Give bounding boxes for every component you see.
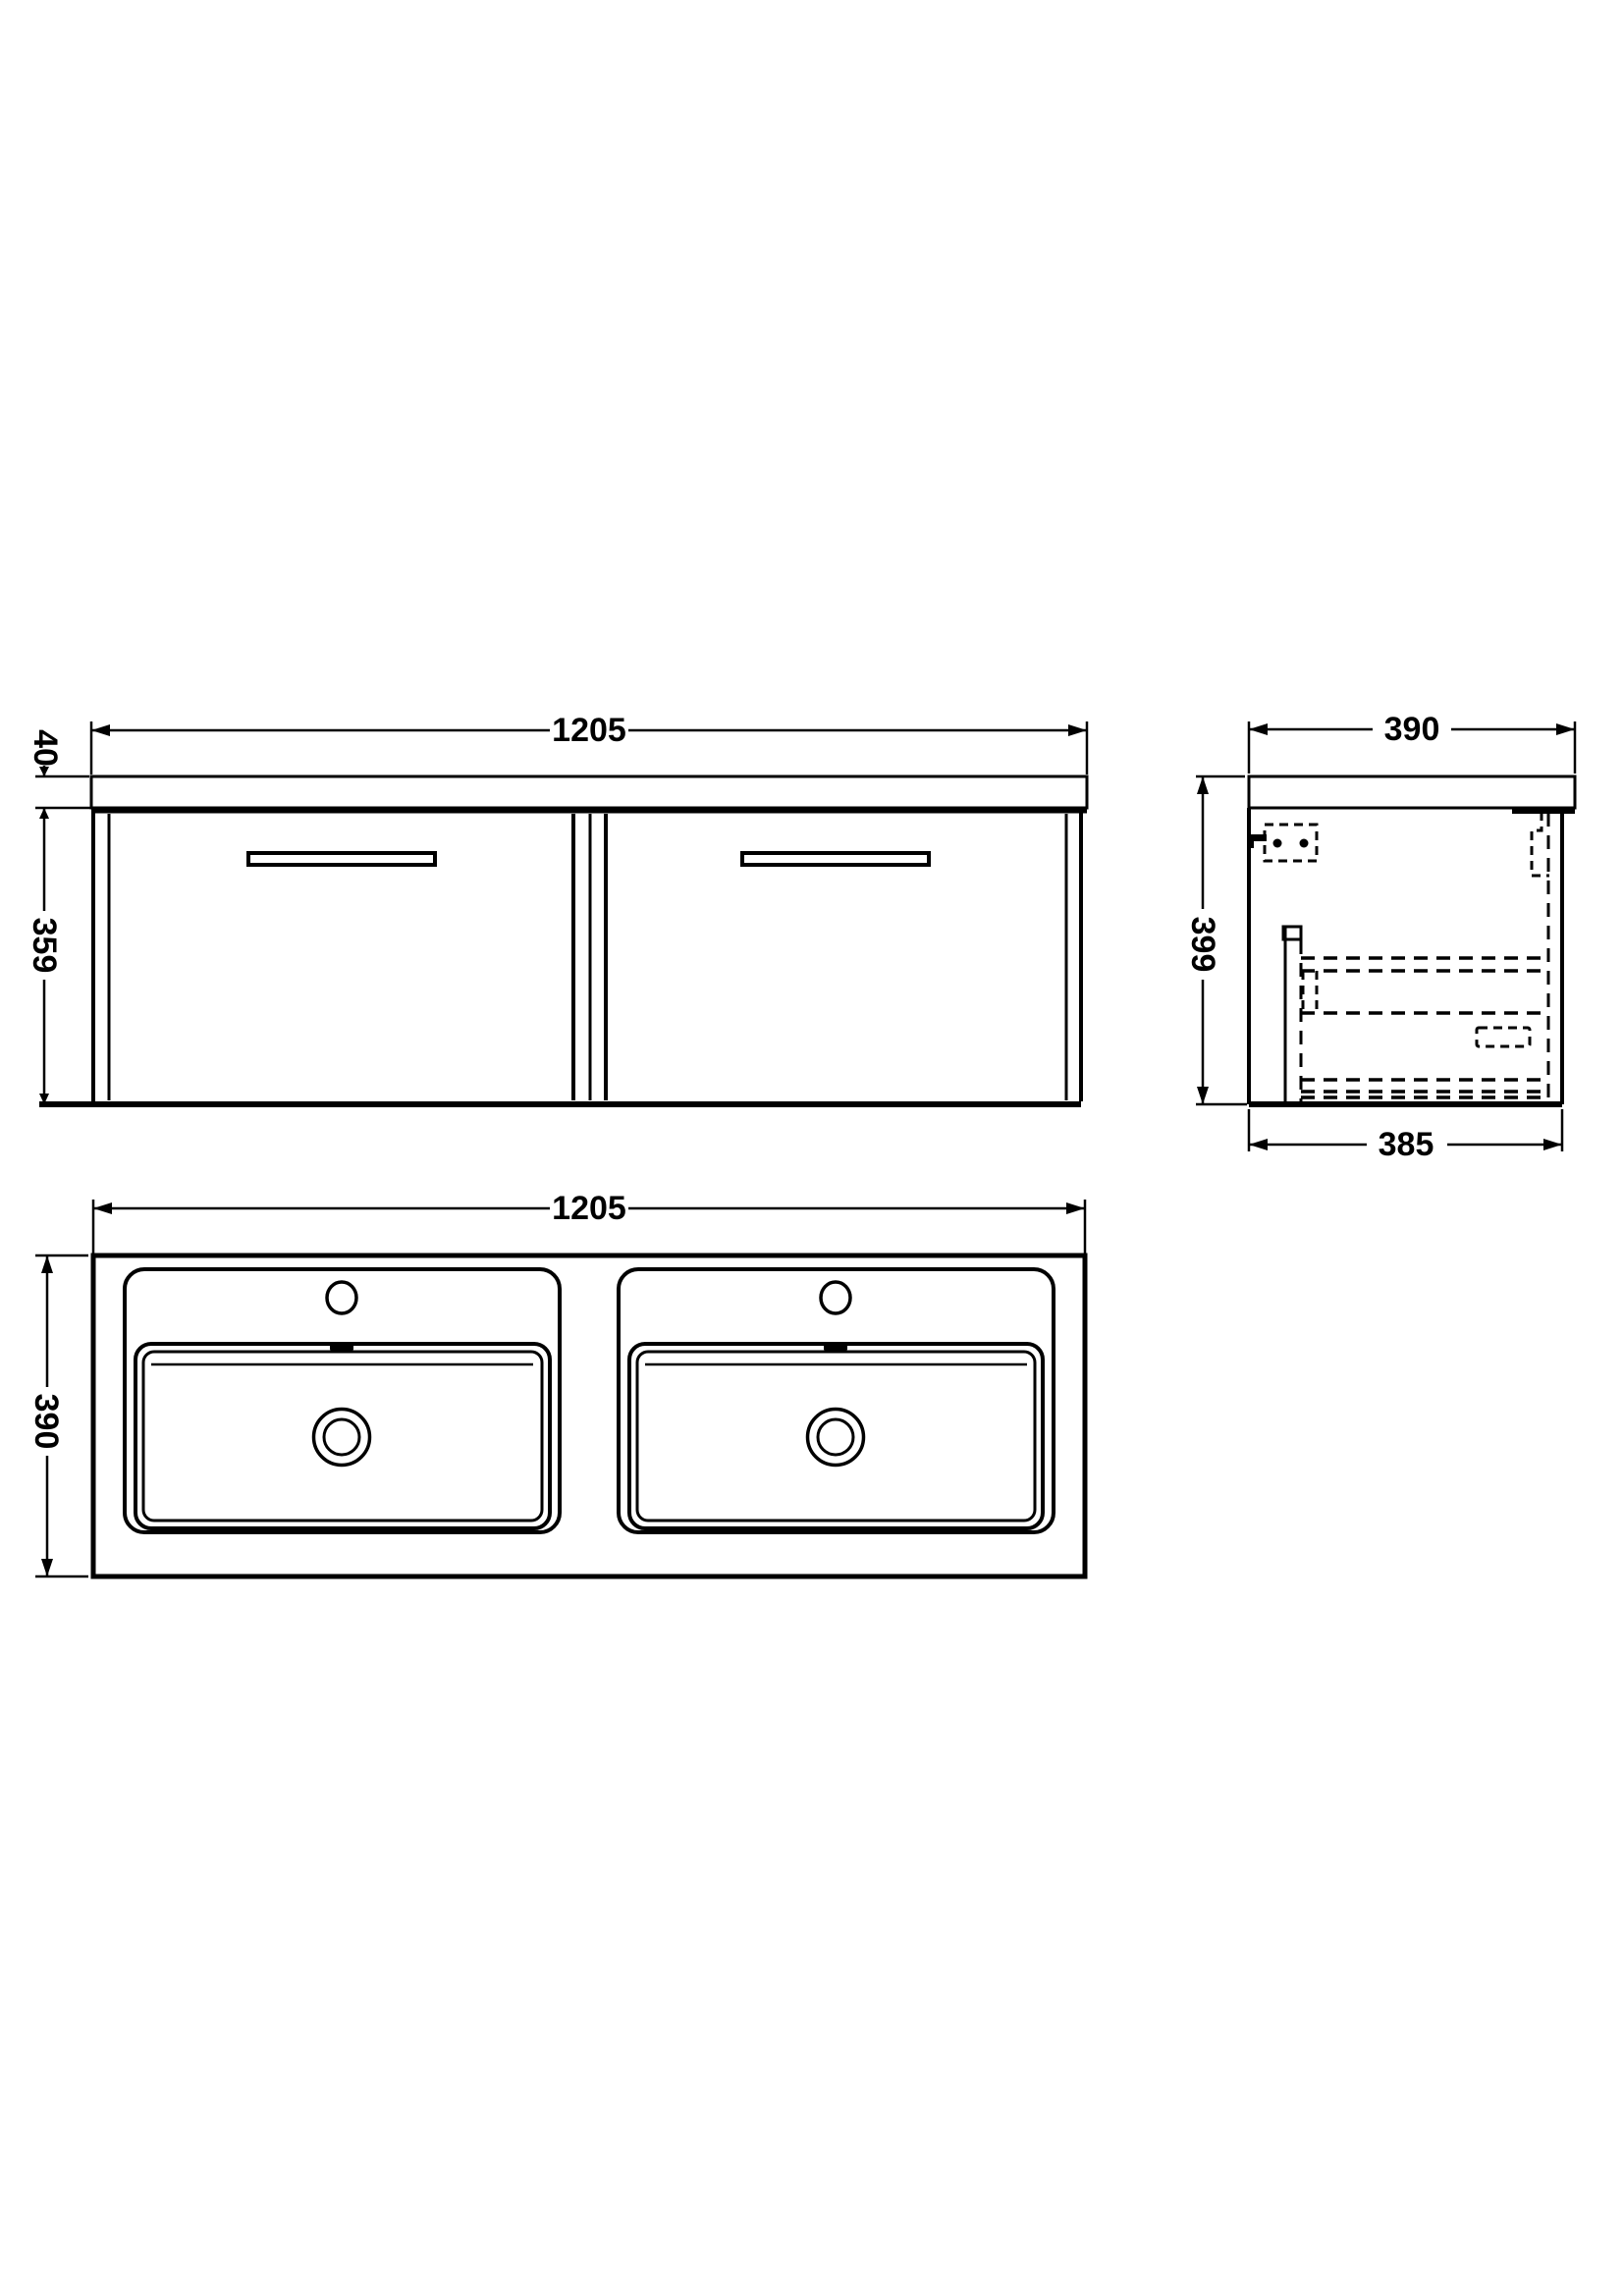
overflow-slot <box>824 1343 847 1351</box>
side-cabinet-depth-label: 385 <box>1379 1126 1434 1163</box>
drawing-canvas: 1205 40 359 <box>0 0 1623 2296</box>
plan-depth-label: 390 <box>27 1394 65 1450</box>
front-height-label: 359 <box>26 918 63 974</box>
side-height-label: 399 <box>1184 917 1221 973</box>
bracket-screw-hole <box>1273 839 1282 848</box>
side-depth-label: 390 <box>1384 711 1440 748</box>
plan-width-label: 1205 <box>552 1190 626 1227</box>
front-width-label: 1205 <box>552 712 626 749</box>
technical-drawing: 1205 40 359 <box>0 0 1623 2296</box>
front-counter-thickness-label: 40 <box>27 729 64 767</box>
overflow-slot <box>330 1343 353 1351</box>
bracket-screw-hole <box>1300 839 1309 848</box>
